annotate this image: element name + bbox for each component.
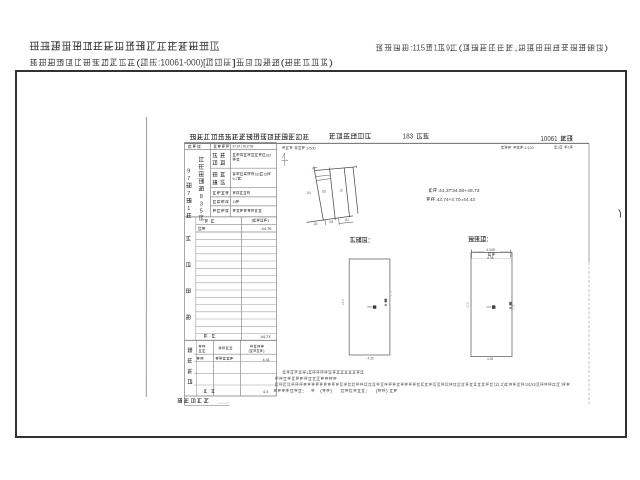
svg-text::: : xyxy=(302,388,304,393)
svg-text:44.73: 44.73 xyxy=(261,334,272,339)
svg-text:1: 1 xyxy=(558,146,560,150)
svg-text:4.345: 4.345 xyxy=(486,248,495,252)
svg-text:11: 11 xyxy=(233,200,236,204)
svg-text:): ) xyxy=(604,43,608,53)
svg-text::43.74+4.70=44.43: :43.74+4.70=44.43 xyxy=(436,197,476,202)
svg-text:7: 7 xyxy=(187,176,190,182)
svg-text:): ) xyxy=(329,58,333,68)
svg-text:44.76: 44.76 xyxy=(262,226,273,231)
svg-text:4.41: 4.41 xyxy=(263,358,270,362)
svg-text::: : xyxy=(560,382,562,387)
svg-text:2.15: 2.15 xyxy=(389,290,393,296)
svg-text::: : xyxy=(365,388,367,393)
svg-text:2.15: 2.15 xyxy=(512,304,516,310)
svg-text:9: 9 xyxy=(187,169,190,175)
svg-text:181: 181 xyxy=(307,191,312,195)
svg-text:(: ( xyxy=(281,58,285,68)
svg-text:21.5: 21.5 xyxy=(341,299,345,305)
svg-text::115: :115 xyxy=(410,43,425,53)
svg-text::1/500: :1/500 xyxy=(305,145,316,150)
svg-text:183: 183 xyxy=(345,218,349,222)
svg-text:4.35: 4.35 xyxy=(368,356,374,360)
svg-text::44.37'34.50+48.73: :44.37'34.50+48.73 xyxy=(438,188,480,193)
svg-text:): ) xyxy=(263,349,264,353)
svg-text:18: 18 xyxy=(340,188,343,192)
svg-text:(11.2): (11.2) xyxy=(494,382,506,387)
svg-text:(: ( xyxy=(136,58,140,68)
svg-text:4.35: 4.35 xyxy=(487,357,493,361)
svg-text:7: 7 xyxy=(187,191,190,197)
svg-text:]: ] xyxy=(232,58,236,68)
svg-text:183: 183 xyxy=(266,152,271,157)
svg-text:,: , xyxy=(514,43,518,53)
svg-text:10061: 10061 xyxy=(541,136,558,143)
svg-text:1: 1 xyxy=(568,146,570,150)
svg-text:(: ( xyxy=(459,43,463,53)
svg-text:1: 1 xyxy=(434,43,438,53)
svg-text::1/100: :1/100 xyxy=(524,146,534,150)
svg-text:21.5: 21.5 xyxy=(466,302,470,308)
svg-text:146: 146 xyxy=(314,222,318,226)
svg-text:183: 183 xyxy=(322,189,327,193)
svg-text:101/XX: 101/XX xyxy=(525,382,536,387)
svg-text::: : xyxy=(486,237,490,244)
svg-text:97.07.17E1739: 97.07.17E1739 xyxy=(233,145,254,149)
svg-text:1: 1 xyxy=(187,206,190,212)
svg-text::10061-000)[: :10061-000)[ xyxy=(158,58,206,68)
svg-text:188: 188 xyxy=(329,220,333,224)
svg-text:5-7: 5-7 xyxy=(233,176,238,181)
svg-text:162: 162 xyxy=(255,172,260,177)
svg-text::: : xyxy=(367,237,371,244)
svg-text:4.38: 4.38 xyxy=(487,256,494,260)
svg-text:183: 183 xyxy=(403,133,414,141)
svg-text:9: 9 xyxy=(446,43,450,53)
svg-text:4.4: 4.4 xyxy=(263,390,268,394)
